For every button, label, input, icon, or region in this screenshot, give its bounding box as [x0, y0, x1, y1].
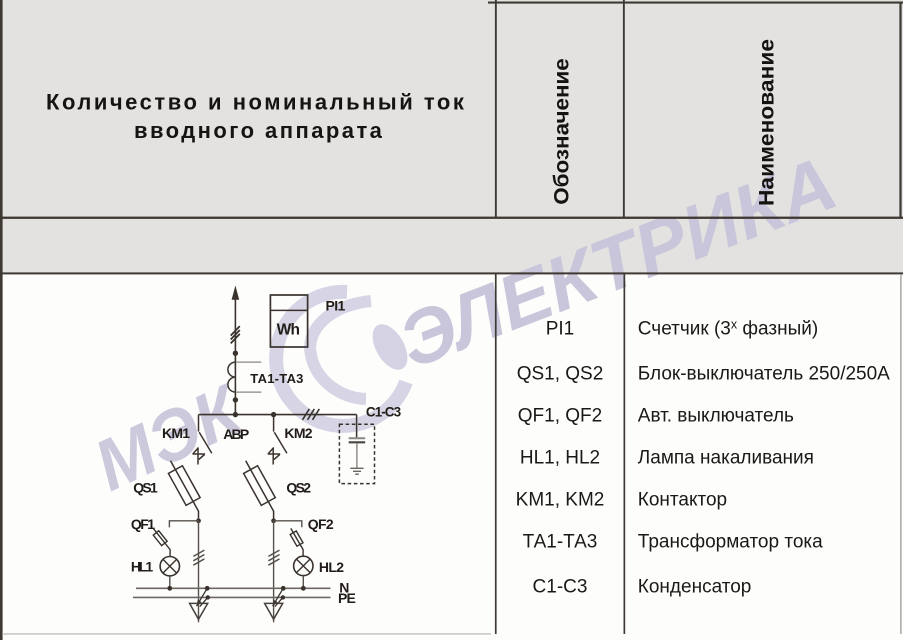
- svg-text:HL2: HL2: [319, 559, 344, 575]
- svg-text:QS1: QS1: [133, 479, 158, 495]
- svg-text:Трансформатор тока: Трансформатор тока: [638, 531, 823, 552]
- svg-text:Wh: Wh: [277, 322, 300, 339]
- svg-text:Обозначение: Обозначение: [551, 58, 574, 205]
- svg-text:Блок-выключатель 250/250А: Блок-выключатель 250/250А: [638, 364, 890, 385]
- svg-text:QF1, QF2: QF1, QF2: [518, 405, 602, 426]
- svg-text:Конденсатор: Конденсатор: [638, 577, 752, 598]
- svg-text:HL1, HL2: HL1, HL2: [520, 448, 600, 469]
- svg-text:PE: PE: [338, 590, 356, 606]
- svg-text:C1-C3: C1-C3: [366, 404, 402, 419]
- svg-text:Контактор: Контактор: [638, 490, 727, 511]
- svg-text:KM1: KM1: [162, 425, 190, 441]
- svg-text:QF1: QF1: [131, 516, 155, 532]
- svg-text:Счетчик (3х фазный): Счетчик (3х фазный): [638, 318, 818, 340]
- svg-text:вводного аппарата: вводного аппарата: [134, 118, 384, 143]
- svg-text:PI1: PI1: [546, 319, 575, 340]
- svg-text:KM2: KM2: [284, 425, 312, 441]
- svg-text:АВР: АВР: [223, 426, 249, 442]
- svg-text:Наименование: Наименование: [756, 39, 779, 206]
- svg-text:ТА1-ТА3: ТА1-ТА3: [523, 531, 598, 552]
- svg-text:Авт. выключатель: Авт. выключатель: [638, 405, 794, 426]
- svg-text:Лампа накаливания: Лампа накаливания: [638, 448, 814, 469]
- svg-text:Количество и номинальный ток: Количество и номинальный ток: [46, 90, 466, 115]
- svg-text:PI1: PI1: [326, 298, 346, 314]
- svg-text:QS2: QS2: [286, 479, 311, 495]
- svg-text:HL1: HL1: [131, 558, 154, 574]
- svg-text:С1-С3: С1-С3: [533, 577, 588, 598]
- svg-text:QF2: QF2: [308, 516, 334, 532]
- svg-text:QS1, QS2: QS1, QS2: [517, 364, 604, 385]
- svg-text:ТА1-ТА3: ТА1-ТА3: [250, 371, 303, 386]
- svg-text:KM1, KM2: KM1, KM2: [516, 490, 605, 511]
